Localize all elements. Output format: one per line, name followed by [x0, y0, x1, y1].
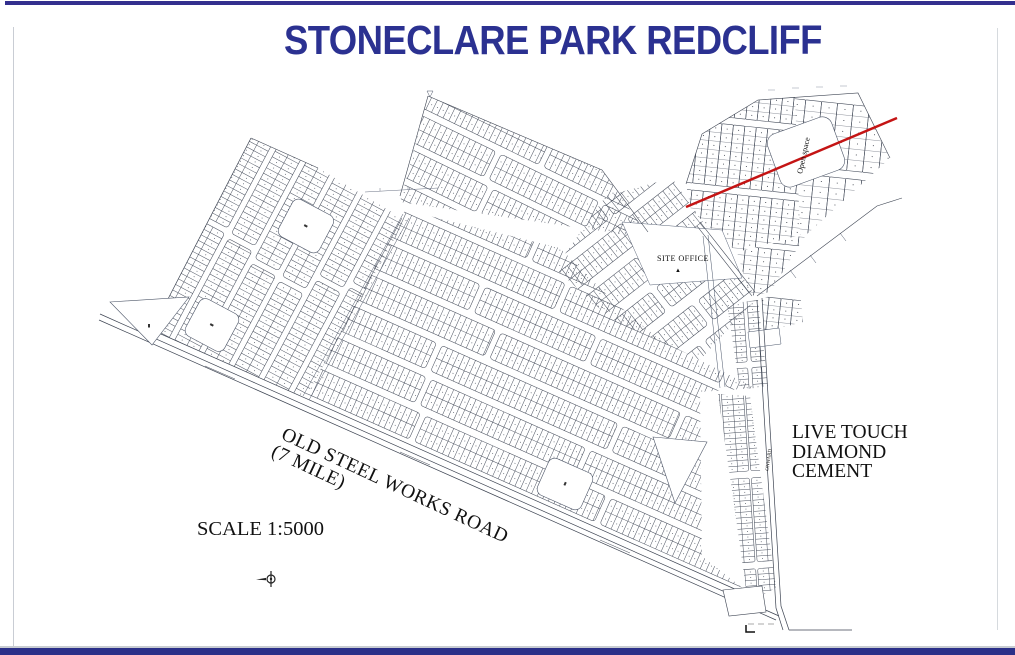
svg-text:SITE OFFICE: SITE OFFICE [657, 254, 709, 263]
svg-text:▲: ▲ [675, 268, 681, 274]
